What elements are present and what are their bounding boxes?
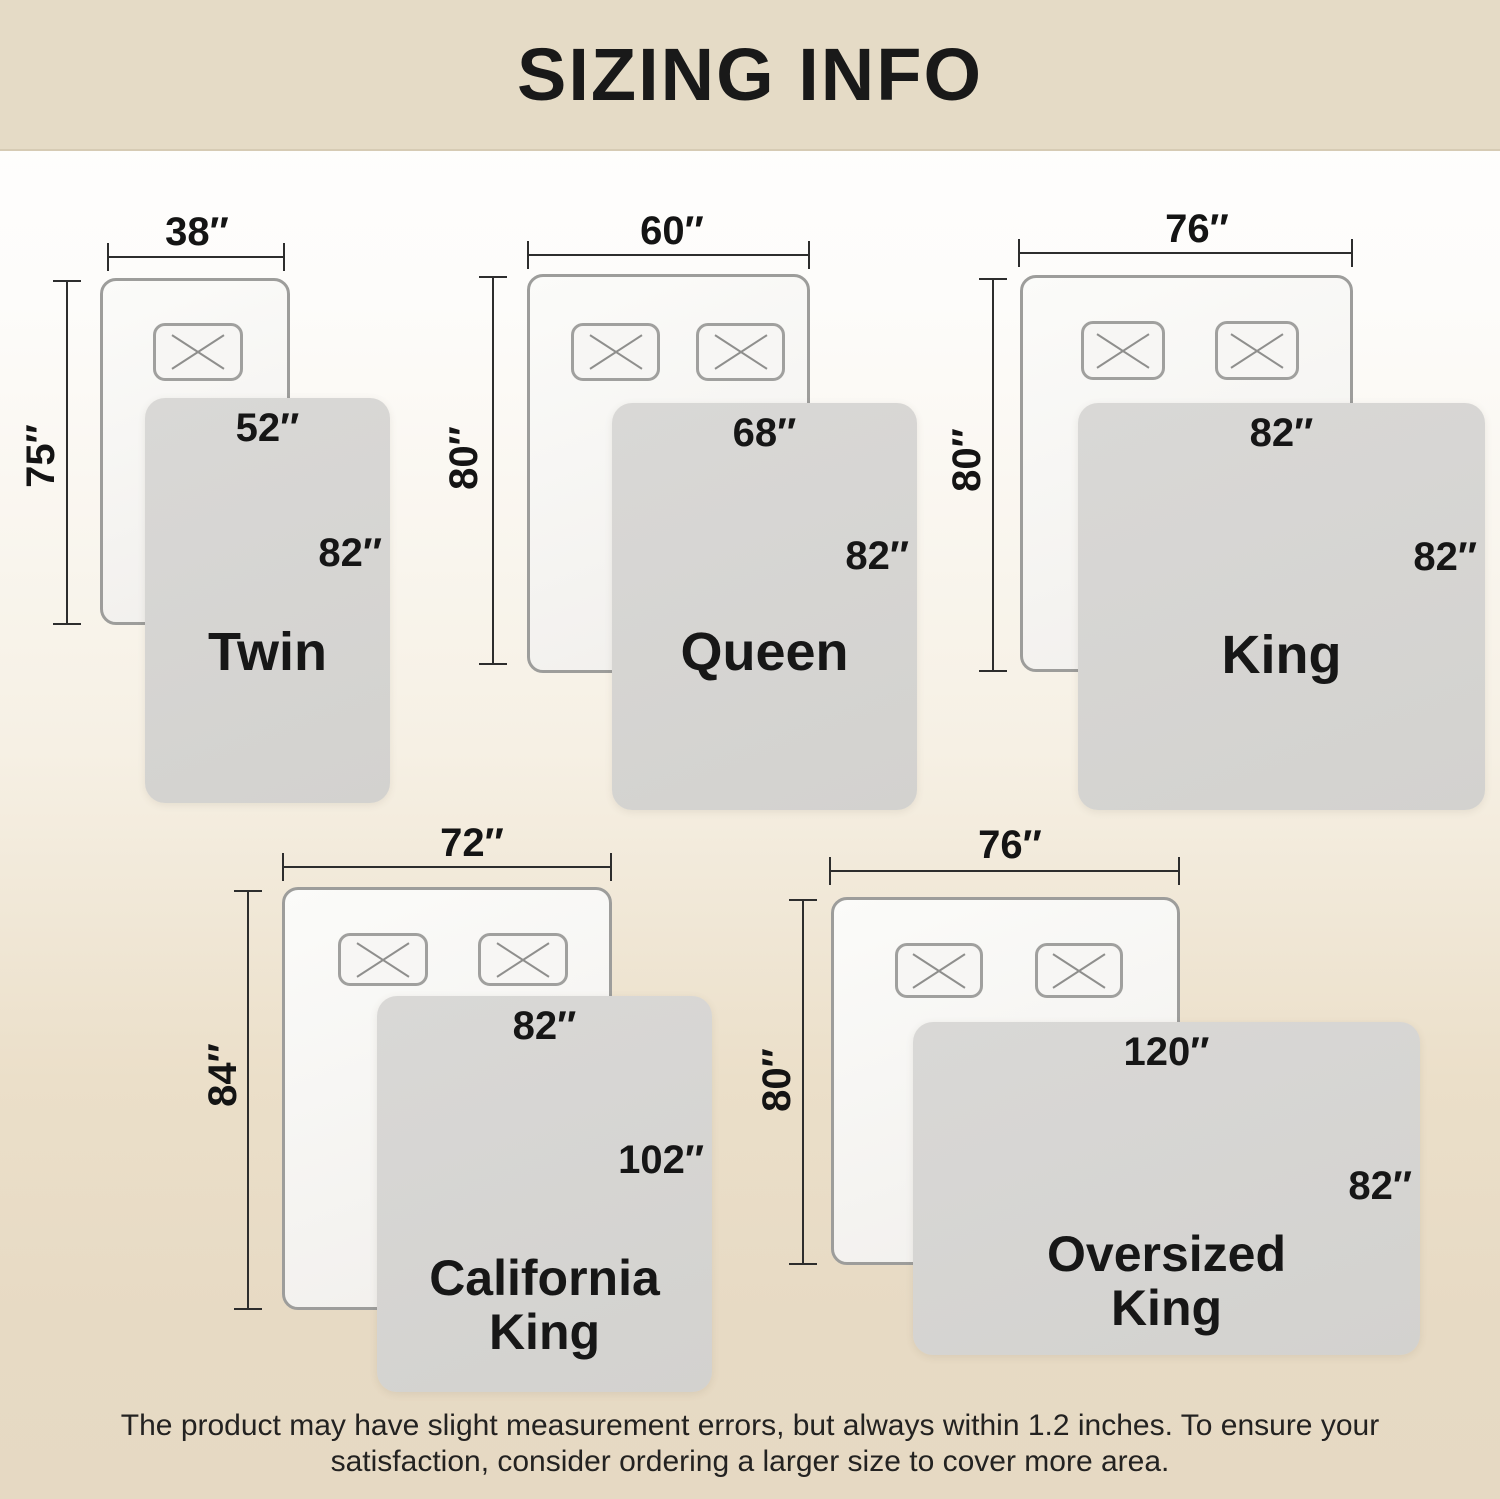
bed-length-dimension-line (492, 276, 494, 665)
bed-length-dimension-line (66, 280, 68, 625)
pillow-icon (1081, 321, 1165, 380)
blanket-length-label: 82″ (845, 534, 909, 578)
blanket-length-label: 82″ (318, 531, 382, 575)
blanket-length-label: 82″ (1348, 1164, 1412, 1208)
blanket-length-label: 102″ (618, 1138, 704, 1182)
pillow-icon (338, 933, 428, 986)
bed-length-label: 80″ (757, 1048, 797, 1112)
size-name-line2: King (1047, 1281, 1286, 1335)
pillow-icon (153, 323, 243, 381)
blanket-queen: 68″ 82″ Queen (612, 403, 917, 810)
disclaimer-line2: satisfaction, consider ordering a larger… (0, 1444, 1500, 1480)
bed-width-label: 38″ (165, 212, 229, 252)
disclaimer-line1: The product may have slight measurement … (0, 1408, 1500, 1444)
pillow-icon (895, 943, 983, 998)
blanket-width-label: 120″ (1124, 1030, 1210, 1074)
pillow-icon (1215, 321, 1299, 380)
blanket-length-label: 82″ (1413, 535, 1477, 579)
bed-width-label: 76″ (1165, 209, 1229, 249)
bed-length-label: 84″ (203, 1043, 243, 1107)
size-name: King (1222, 628, 1342, 682)
blanket-width-label: 82″ (1250, 411, 1314, 455)
bed-width-label: 76″ (978, 825, 1042, 865)
blanket-california-king: 82″ 102″ CaliforniaKing (377, 996, 712, 1392)
bed-width-label: 72″ (440, 823, 504, 863)
bed-width-dimension-line (527, 254, 810, 256)
sizing-info-graphic: SIZING INFO 38″ 75″ 52″ 82″ Twin 60″ 80″… (0, 0, 1500, 1499)
size-name-line1: California (429, 1251, 660, 1305)
pillow-icon (696, 323, 785, 381)
blanket-oversized-king: 120″ 82″ OversizedKing (913, 1022, 1420, 1355)
bed-width-dimension-line (107, 256, 285, 258)
bed-length-dimension-line (802, 899, 804, 1265)
page-title: SIZING INFO (517, 32, 983, 117)
blanket-width-label: 52″ (236, 406, 300, 450)
bed-width-dimension-line (1018, 252, 1353, 254)
bed-length-label: 80″ (947, 428, 987, 492)
bed-length-dimension-line (992, 278, 994, 672)
pillow-icon (478, 933, 568, 986)
size-name: CaliforniaKing (429, 1251, 660, 1359)
size-name: Queen (680, 625, 848, 679)
size-name-line1: Oversized (1047, 1227, 1286, 1281)
size-name-line2: King (429, 1305, 660, 1359)
size-name-line1: Twin (208, 625, 327, 679)
header-banner: SIZING INFO (0, 0, 1500, 151)
blanket-width-label: 68″ (733, 411, 797, 455)
bed-length-label: 75″ (21, 424, 61, 488)
bed-width-dimension-line (282, 866, 612, 868)
blanket-king: 82″ 82″ King (1078, 403, 1485, 810)
disclaimer-note: The product may have slight measurement … (0, 1408, 1500, 1480)
size-name-line1: Queen (680, 625, 848, 679)
size-name-line1: King (1222, 628, 1342, 682)
bed-width-label: 60″ (640, 211, 704, 251)
blanket-twin: 52″ 82″ Twin (145, 398, 390, 803)
blanket-width-label: 82″ (513, 1004, 577, 1048)
bed-length-label: 80″ (444, 426, 484, 490)
size-name: OversizedKing (1047, 1227, 1286, 1335)
bed-length-dimension-line (247, 890, 249, 1310)
pillow-icon (571, 323, 660, 381)
size-name: Twin (208, 625, 327, 679)
pillow-icon (1035, 943, 1123, 998)
bed-width-dimension-line (829, 870, 1180, 872)
